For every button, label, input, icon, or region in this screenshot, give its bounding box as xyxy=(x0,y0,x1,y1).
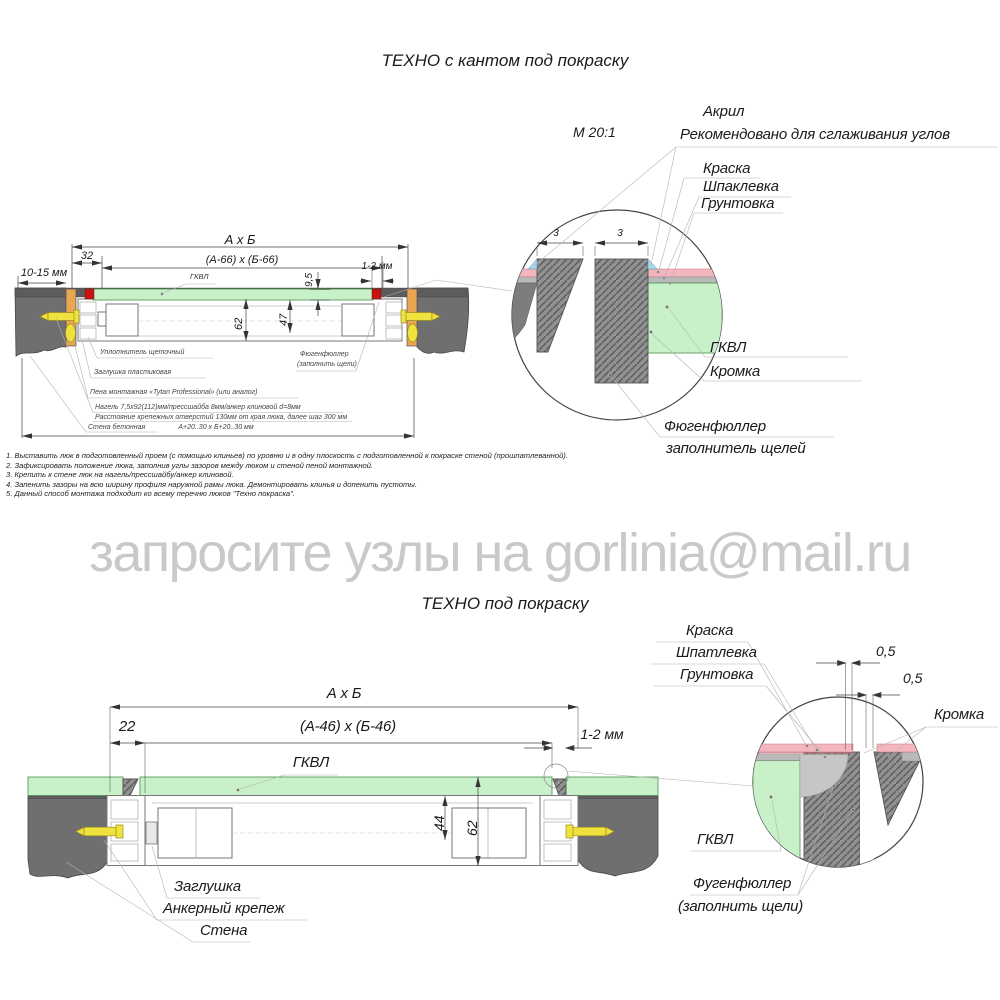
joint-gap xyxy=(860,744,874,870)
label-putty-bottom: Шпатлевка xyxy=(676,645,757,660)
dim-44: 44 xyxy=(432,815,446,831)
dim-gap-top: 1-2 мм xyxy=(362,262,393,272)
plug-part xyxy=(146,822,157,844)
label-filler-bottom-2: (заполнить щели) xyxy=(678,899,803,914)
ann-filler-2: (заполнить щели) xyxy=(297,361,357,368)
label-filler-bottom-1: Фугенфюллер xyxy=(693,876,791,891)
instruction-step: 3. Крепить к стене люк на нагель/прессша… xyxy=(6,470,568,480)
instruction-list: 1. Выставить люк в подготовленный проем … xyxy=(6,451,568,499)
ann-plug: Заглушка пластиковая xyxy=(94,369,171,376)
label-acryl: Акрил xyxy=(703,104,744,119)
frame-profile-bottom xyxy=(107,796,578,866)
ann-seal: Уплотнитель щеточный xyxy=(100,349,184,356)
label-putty-top: Шпаклевка xyxy=(703,179,779,194)
label-filler-top-2: заполнитель щелей xyxy=(666,441,806,456)
dim-62-bottom: 62 xyxy=(465,820,479,836)
gkvl-door xyxy=(140,777,552,796)
ann-foam: Пена монтажная «Tytan Professional» (или… xyxy=(90,389,257,396)
dim-inner-top: (А-66) х (Б-66) xyxy=(206,255,279,266)
dim-axb-bottom: А х Б xyxy=(327,686,362,701)
paint-layer-bottom-left xyxy=(753,744,853,752)
dim-05-upper: 0,5 xyxy=(876,644,895,658)
dim-62-top: 62 xyxy=(234,318,245,330)
bottom-title: ТЕХНО под покраску xyxy=(422,595,589,612)
label-primer-bottom: Грунтовка xyxy=(680,667,753,682)
edge-wedge-left xyxy=(123,779,138,796)
gkvl-edge-block-right xyxy=(595,259,648,383)
instruction-step: 4. Запенить зазоры на всю ширину профиля… xyxy=(6,480,568,490)
scale-label: М 20:1 xyxy=(573,125,616,139)
dim-32: 32 xyxy=(81,251,93,262)
top-title: ТЕХНО с кантом под покраску xyxy=(382,52,629,69)
paint-layer-left xyxy=(512,269,537,277)
drawing-canvas xyxy=(0,0,1000,1000)
instruction-step: 1. Выставить люк в подготовленный проем … xyxy=(6,451,568,461)
label-wall: Стена xyxy=(200,923,247,938)
primer-layer-left xyxy=(512,277,537,283)
edge-marker-right xyxy=(372,289,381,299)
label-paint-top: Краска xyxy=(703,161,750,176)
label-paint-bottom: Краска xyxy=(686,623,733,638)
wall-right-bottom xyxy=(578,797,658,876)
bottom-section-drawing xyxy=(28,707,753,942)
edge-marker-left xyxy=(85,289,94,299)
ann-nagel: Нагель 7,5х92(112)мм/прессшайба 8мм/анке… xyxy=(95,404,301,411)
dim-47: 47 xyxy=(279,314,290,326)
drawing-sheet: ТЕХНО с кантом под покраску ТЕХНО под по… xyxy=(0,0,1000,1000)
wall-left-bottom xyxy=(28,797,107,878)
foam-plug-right xyxy=(408,324,418,342)
label-anchor: Анкерный крепеж xyxy=(163,901,284,916)
dim-axb-top: А х Б xyxy=(225,233,256,246)
wall-left xyxy=(15,288,66,356)
label-primer-top: Грунтовка xyxy=(701,196,774,211)
dim-22: 22 xyxy=(119,719,135,734)
dim-wall-gap: 10-15 мм xyxy=(21,268,67,279)
label-acryl-note: Рекомендовано для сглаживания углов xyxy=(680,127,950,142)
gkvl-wall-right xyxy=(566,777,658,796)
gkvl-label-top: ГКВЛ xyxy=(190,273,208,281)
gkvl-detail-bottom xyxy=(753,761,800,871)
dim-05-lower: 0,5 xyxy=(903,671,922,685)
label-edge-bottom: Кромка xyxy=(934,707,984,722)
gkvl-panel xyxy=(93,289,373,300)
ann-filler-1: Фюгенфюллер xyxy=(300,351,349,358)
dim-9-5: 9,5 xyxy=(305,273,315,287)
label-gkvl-detail-top: ГКВЛ xyxy=(710,340,746,355)
instruction-step: 2. Зафиксировать положение люка, заполни… xyxy=(6,461,568,471)
ann-spacing: Расстояние крепежных отверстий 130мм от … xyxy=(95,414,347,421)
ann-wall: Стена бетонная xyxy=(88,424,145,431)
dim-3-right: 3 xyxy=(617,229,623,239)
foam-plug-left xyxy=(66,324,76,342)
dim-gap-bottom: 1-2 мм xyxy=(580,727,623,741)
dim-3-left: 3 xyxy=(553,229,559,239)
instruction-step: 5. Данный способ монтажа подходит ко все… xyxy=(6,489,568,499)
paint-layer-bottom-right xyxy=(877,744,925,752)
gkvl-label-bottom: ГКВЛ xyxy=(293,755,329,770)
label-gkvl-detail-bottom: ГКВЛ xyxy=(697,832,733,847)
label-plug: Заглушка xyxy=(174,879,241,894)
gkvl-wall-left xyxy=(28,777,123,796)
primer-layer-right xyxy=(648,277,722,283)
primer-layer-bottom xyxy=(753,755,800,761)
label-edge-top: Кромка xyxy=(710,364,760,379)
dim-inner-bottom: (А-46) х (Б-46) xyxy=(300,719,396,734)
dim-opening: А+20..30 х Б+20..30 мм xyxy=(178,424,253,431)
label-filler-top-1: Фюгенфюллер xyxy=(664,419,766,434)
